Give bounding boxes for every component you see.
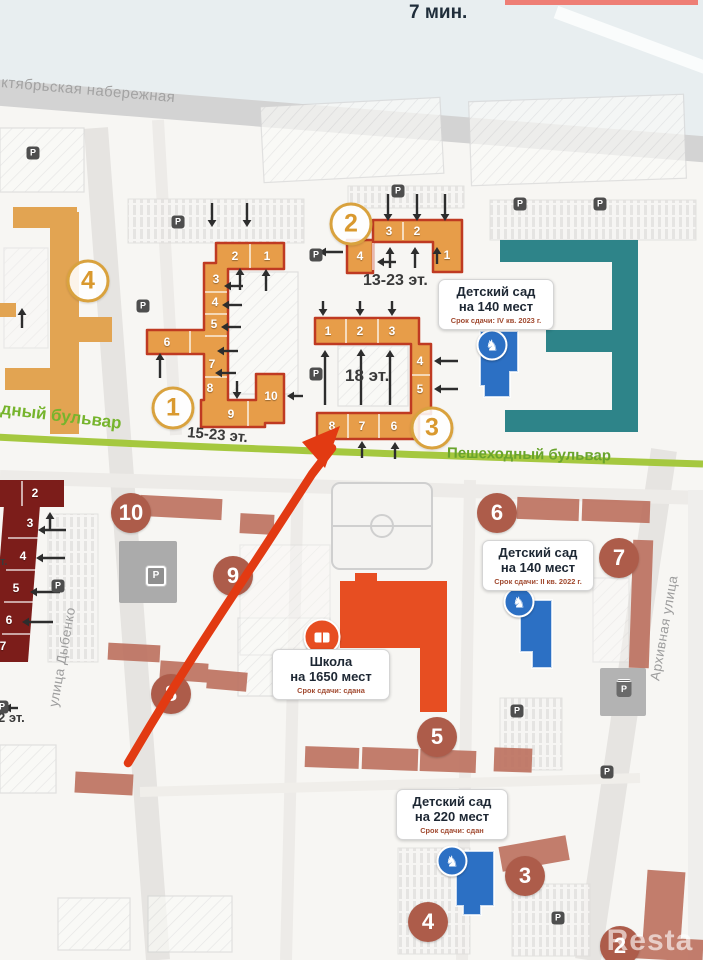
info-box-school: Школана 1650 местСрок сдачи: сдана [272, 649, 390, 700]
info-box-deadline: Срок сдачи: IV кв. 2023 г. [441, 316, 551, 325]
info-box-title-line: на 220 мест [399, 810, 505, 825]
info-box-kindergarten-1: Детский садна 140 местСрок сдачи: IV кв.… [438, 279, 554, 330]
info-box-title-line: Детский сад [399, 795, 505, 810]
site-plan-map: ктябрьская набережная улица Дыбенко Архи… [0, 0, 703, 960]
info-box-deadline: Срок сдачи: сдана [275, 686, 387, 695]
info-box-layer: Детский садна 140 местСрок сдачи: IV кв.… [0, 0, 703, 960]
info-box-title-line: Школа [275, 655, 387, 670]
info-box-title-line: на 140 мест [441, 300, 551, 315]
info-box-title-line: на 140 мест [485, 561, 591, 576]
info-box-kindergarten-2: Детский садна 140 местСрок сдачи: II кв.… [482, 540, 594, 591]
info-box-title-line: Детский сад [485, 546, 591, 561]
info-box-deadline: Срок сдачи: сдан [399, 826, 505, 835]
info-box-kindergarten-3: Детский садна 220 местСрок сдачи: сдан [396, 789, 508, 840]
info-box-title-line: Детский сад [441, 285, 551, 300]
info-box-title-line: на 1650 мест [275, 670, 387, 685]
info-box-deadline: Срок сдачи: II кв. 2022 г. [485, 577, 591, 586]
